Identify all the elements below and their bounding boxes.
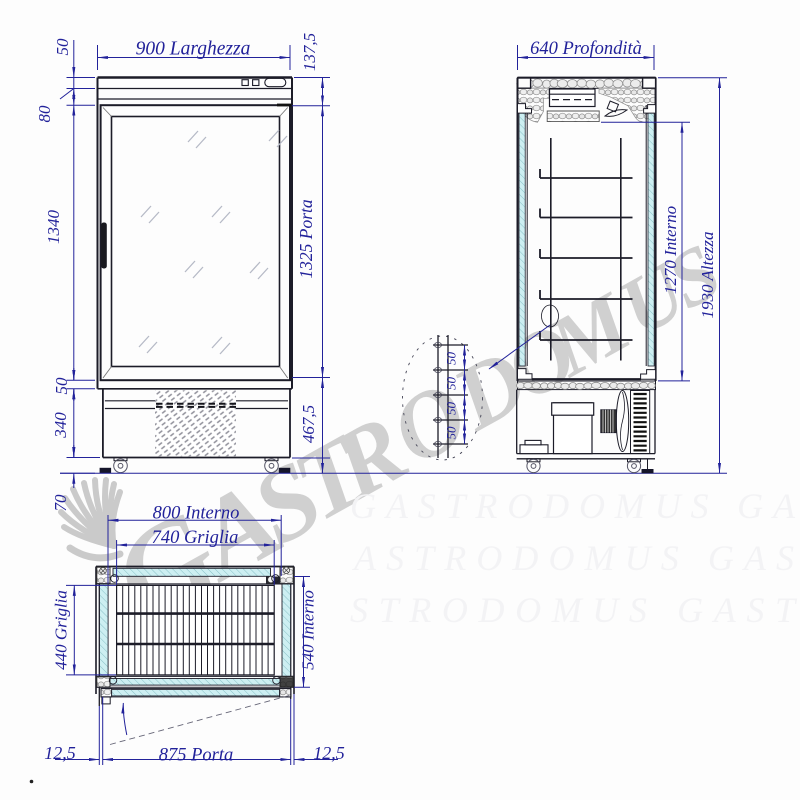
svg-text:640 Profondità: 640 Profondità — [530, 39, 642, 59]
svg-text:137,5: 137,5 — [300, 33, 319, 71]
svg-text:12,5: 12,5 — [313, 743, 345, 763]
svg-text:875 Porta: 875 Porta — [159, 746, 234, 766]
svg-text:ASTRODOMUS GAS: ASTRODOMUS GAS — [352, 538, 794, 578]
svg-text:440 Griglia: 440 Griglia — [52, 590, 71, 670]
svg-text:800 Interno: 800 Interno — [153, 504, 240, 524]
svg-text:70: 70 — [51, 494, 70, 512]
svg-text:50: 50 — [444, 426, 459, 440]
svg-text:1270 Interno: 1270 Interno — [661, 206, 680, 294]
svg-text:50: 50 — [444, 402, 459, 416]
svg-text:540 Interno: 540 Interno — [299, 590, 318, 670]
svg-text:740 Griglia: 740 Griglia — [152, 528, 239, 548]
svg-text:1325 Porta: 1325 Porta — [296, 199, 316, 278]
svg-text:50: 50 — [444, 377, 459, 391]
svg-text:50: 50 — [52, 377, 71, 395]
svg-text:1340: 1340 — [44, 210, 63, 245]
svg-text:50: 50 — [53, 38, 72, 56]
svg-text:900 Larghezza: 900 Larghezza — [136, 39, 251, 60]
svg-text:STRODOMUS GAST: STRODOMUS GAST — [350, 590, 798, 630]
svg-text:340: 340 — [51, 412, 70, 439]
svg-text:50: 50 — [444, 352, 459, 366]
svg-text:1930 Altezza: 1930 Altezza — [698, 231, 717, 318]
svg-text:12,5: 12,5 — [44, 743, 76, 763]
svg-text:80: 80 — [35, 105, 54, 123]
svg-text:467,5: 467,5 — [299, 405, 318, 443]
